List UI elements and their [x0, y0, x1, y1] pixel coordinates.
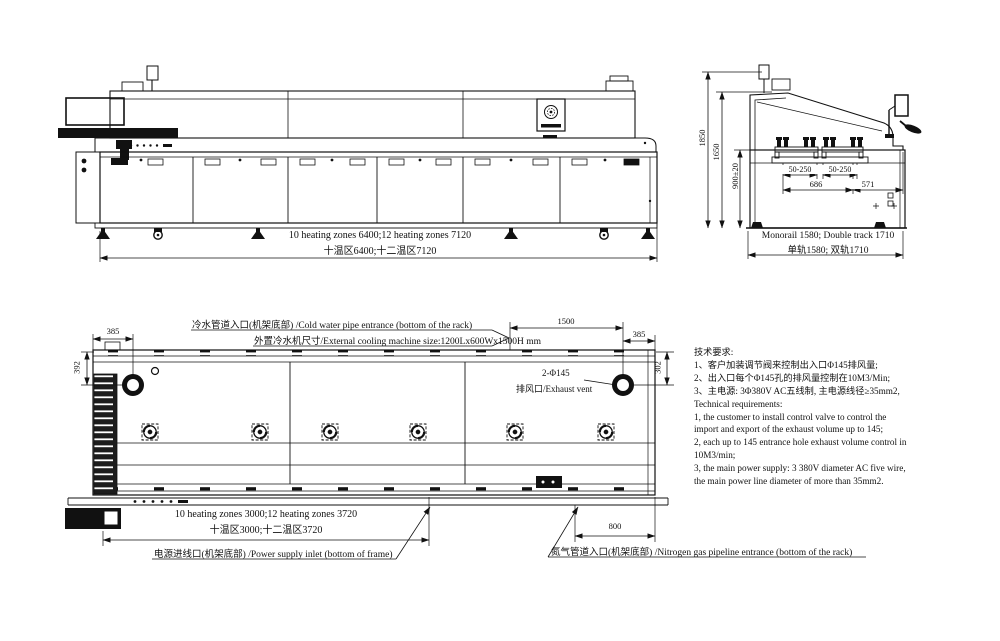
end-monitor	[885, 95, 923, 138]
side-zones-label-cn: 十温区6400;十二温区7120	[230, 242, 530, 257]
dim-385-left-label: 385	[95, 326, 131, 336]
plan-body	[93, 342, 655, 495]
dim-571-label: 571	[850, 179, 886, 189]
exhaust-vent-ring-right	[615, 377, 632, 394]
dim-50-250-left-label: 50-250	[781, 165, 819, 174]
engineering-drawing-sheet: 10 heating zones 6400;12 heating zones 7…	[0, 0, 1000, 641]
handle	[903, 122, 922, 135]
track-label-cn: 单轨1580; 双轨1710	[750, 242, 906, 256]
door-panel-hardware	[111, 158, 651, 202]
tech-line: Technical requirements:	[694, 398, 926, 411]
tech-line: the main power line diameter of more tha…	[694, 475, 926, 488]
cold-water-label: 冷水管道入口(机架底部) /Cold water pipe entrance (…	[192, 317, 472, 331]
nitrogen-label: 氮气管道入口(机架底部) /Nitrogen gas pipeline entr…	[551, 544, 852, 558]
tech-line: 2、出入口每个Φ145孔的排风量控制在10M3/Min;	[694, 372, 926, 385]
tech-line: 1、客户加装调节阀来控制出入口Φ145排风量;	[694, 359, 926, 372]
keyboard-tray	[58, 128, 178, 138]
dim-385-right-label: 385	[621, 329, 657, 339]
cooling-machine-label: 外置冷水机尺寸/External cooling machine size:12…	[254, 333, 541, 347]
tech-line: 技术要求:	[694, 346, 926, 359]
dim-800-label: 800	[595, 521, 635, 531]
dim-686-label: 686	[798, 179, 834, 189]
track-label-en: Monorail 1580; Double track 1710	[750, 231, 906, 241]
cable-chain	[94, 374, 117, 494]
plan-zones-label-cn: 十温区3000;十二温区3720	[116, 521, 416, 536]
tech-line: 3、主电源: 3Φ380V AC五线制, 主电源线径≥35mm2,	[694, 385, 926, 398]
signal-tower-lamp	[122, 66, 158, 91]
dim-1650-label: 1650	[711, 137, 723, 167]
power-supply-label: 电源进线口(机架底部) /Power supply inlet (bottom …	[154, 546, 393, 560]
tech-line: 2, each up to 145 entrance hole exhaust …	[694, 436, 926, 449]
dim-1850-label: 1850	[697, 123, 709, 153]
cooling-fans	[142, 424, 614, 440]
dim-1500-label: 1500	[536, 316, 596, 326]
end-body	[750, 150, 905, 228]
plan-zones-label-en: 10 heating zones 3000;12 heating zones 3…	[116, 509, 416, 520]
vent-count-label: 2-Φ145	[542, 368, 570, 378]
dim-302-label: 302	[653, 355, 664, 381]
side-zones-label-en: 10 heating zones 6400;12 heating zones 7…	[230, 230, 530, 241]
exhaust-vent-ring-left	[125, 377, 142, 394]
machine-body	[76, 152, 657, 228]
tech-line: import and export of the exhaust volume …	[694, 423, 926, 436]
tech-line: 10M3/min;	[694, 449, 926, 462]
technical-requirements: 技术要求: 1、客户加装调节阀来控制出入口Φ145排风量; 2、出入口每个Φ14…	[694, 346, 926, 488]
dim-392-label: 392	[72, 355, 83, 381]
fan-emblem	[537, 99, 565, 138]
monitor	[58, 98, 178, 160]
tech-line: 1, the customer to install control valve…	[694, 411, 926, 424]
tech-line: 3, the main power supply: 3 380V diamete…	[694, 462, 926, 475]
exhaust-vent-label: 排风口/Exhaust vent	[516, 382, 592, 395]
conveyor-band	[95, 138, 656, 152]
end-base	[746, 222, 907, 228]
control-box	[536, 476, 562, 488]
rail-bolts	[776, 137, 863, 147]
dim-50-250-right-label: 50-250	[821, 165, 859, 174]
dim-800	[575, 497, 655, 542]
dim-900-label: 900±20	[730, 154, 742, 198]
oven-hood	[110, 76, 635, 138]
end-signal-lamp	[759, 65, 790, 93]
